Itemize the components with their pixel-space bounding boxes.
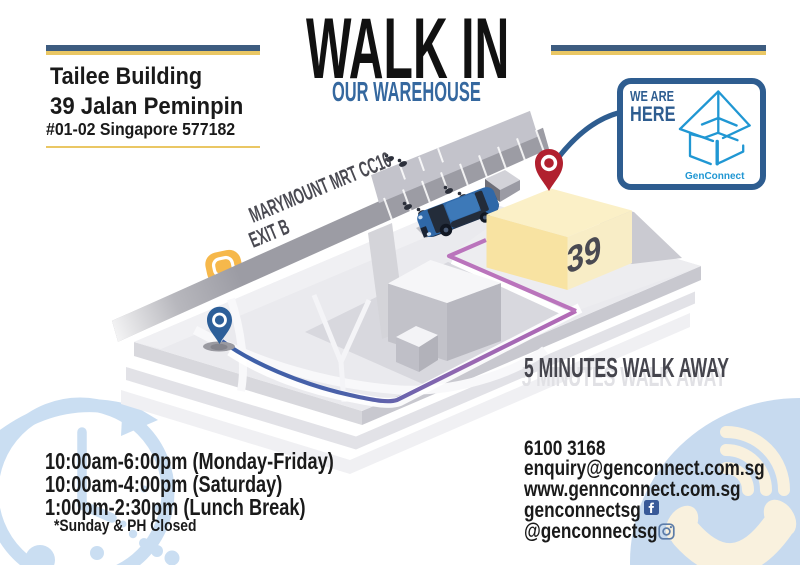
svg-text:GenConnect: GenConnect	[685, 171, 745, 180]
